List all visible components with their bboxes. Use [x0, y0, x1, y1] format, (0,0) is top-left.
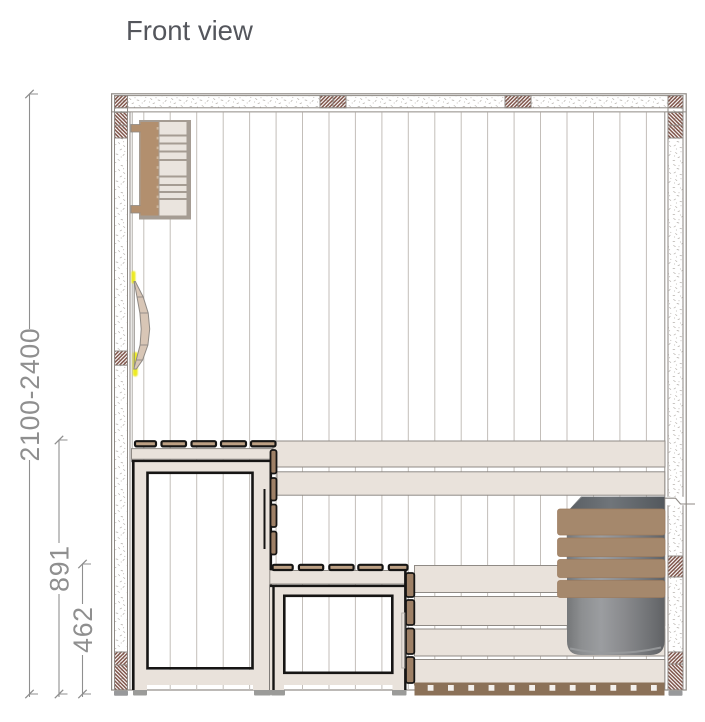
svg-text:Front view: Front view [126, 15, 253, 46]
svg-text:462: 462 [68, 606, 98, 653]
svg-text:891: 891 [44, 545, 74, 592]
svg-text:2100-2400: 2100-2400 [15, 328, 45, 462]
